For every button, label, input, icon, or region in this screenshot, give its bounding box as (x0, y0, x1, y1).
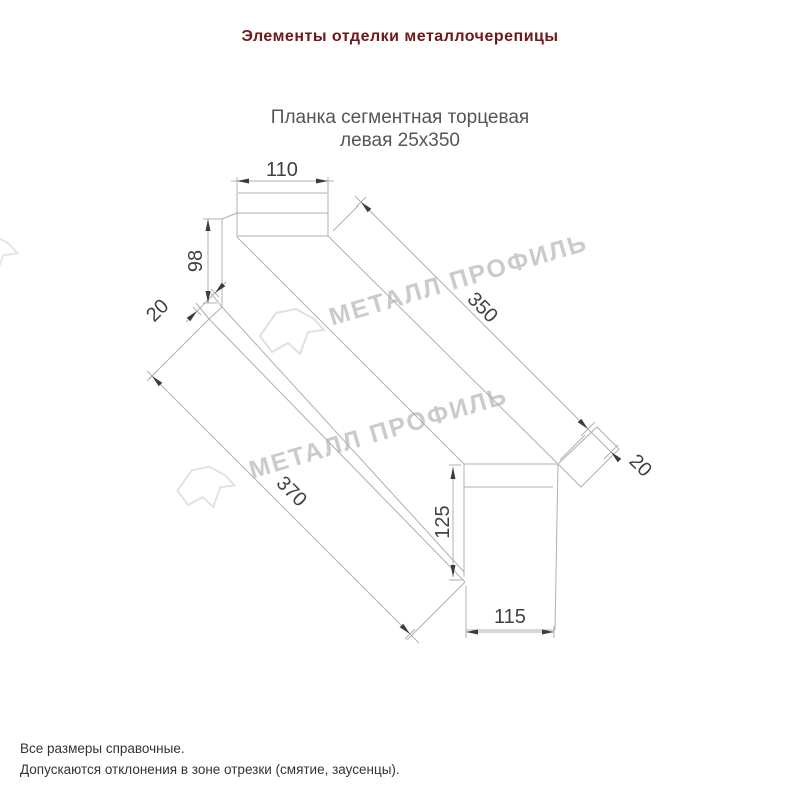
technical-drawing: 110 98 20 350 370 20 125 115 (0, 0, 800, 800)
dim-label-125: 125 (432, 505, 454, 538)
dim-label-110: 110 (266, 159, 298, 181)
footer-note: Все размеры справочные. Допускаются откл… (20, 738, 400, 780)
dim-label-370: 370 (272, 472, 311, 511)
dim-label-115: 115 (494, 606, 526, 628)
dim-label-98: 98 (185, 250, 207, 272)
dim-label-20-far: 20 (625, 450, 656, 481)
dim-label-20-near: 20 (142, 295, 173, 326)
catalog-image: МЕТАЛЛ ПРОФИЛЬ МЕТАЛЛ ПРОФИЛЬ МЕТАЛЛ ПРО… (0, 0, 800, 800)
dimension-lines (147, 177, 618, 643)
footer-line-2: Допускаются отклонения в зоне отрезки (с… (20, 759, 400, 780)
profile-outline-paths (209, 193, 619, 630)
footer-line-1: Все размеры справочные. (20, 738, 400, 759)
dimension-labels: 110 98 20 350 370 20 125 115 (142, 159, 656, 628)
dim-label-350: 350 (463, 288, 502, 327)
